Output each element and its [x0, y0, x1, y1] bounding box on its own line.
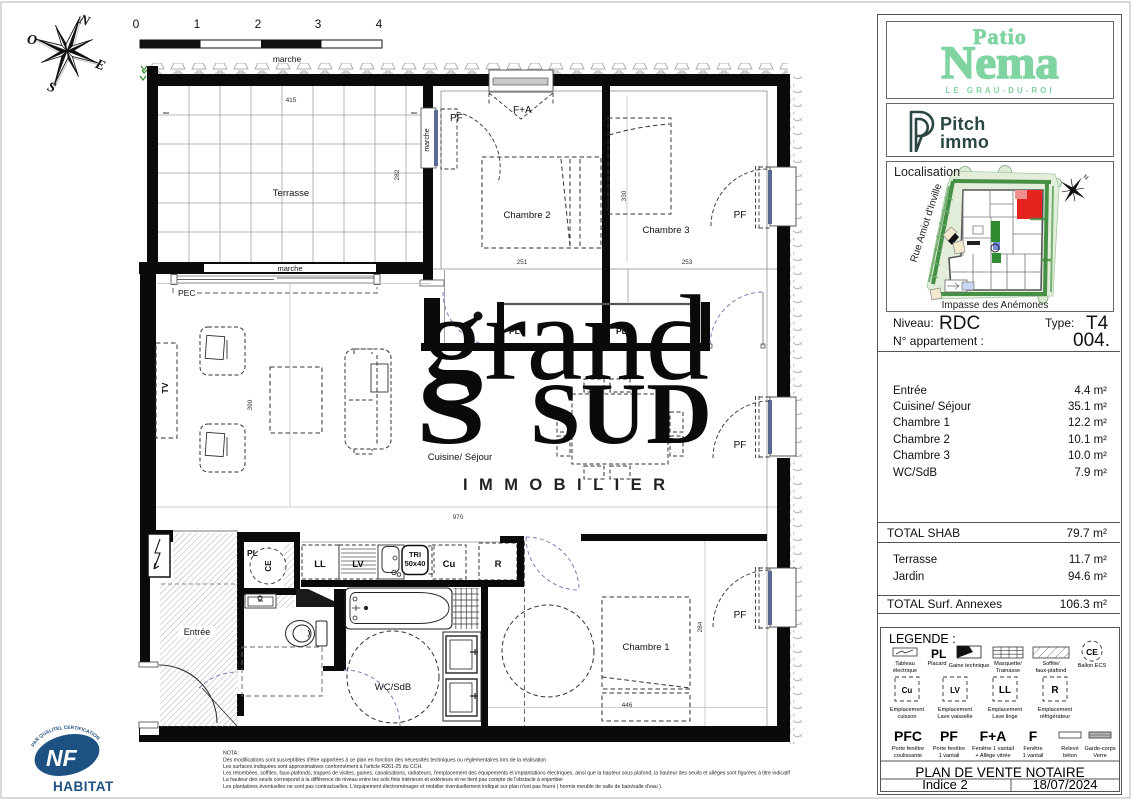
- svg-text:0: 0: [133, 17, 140, 31]
- svg-text:1 vantail: 1 vantail: [1023, 753, 1044, 759]
- svg-text:Trainasse: Trainasse: [996, 668, 1020, 674]
- svg-text:Chambre 2: Chambre 2: [504, 210, 551, 221]
- svg-text:Garde-corps: Garde-corps: [1084, 746, 1115, 752]
- svg-text:Localisation: Localisation: [894, 165, 960, 179]
- svg-text:284: 284: [697, 621, 704, 632]
- svg-text:PF: PF: [734, 210, 747, 221]
- svg-text:CE: CE: [264, 560, 273, 572]
- svg-text:Entrée: Entrée: [184, 627, 211, 637]
- svg-text:Emplacement: Emplacement: [988, 707, 1023, 713]
- svg-text:CE: CE: [1086, 647, 1098, 657]
- svg-text:PEC: PEC: [178, 288, 195, 298]
- svg-text:Les surfaces indiquées sont ap: Les surfaces indiquées sont approximativ…: [223, 764, 423, 770]
- svg-text:WC/SdB: WC/SdB: [375, 682, 411, 693]
- svg-text:415: 415: [286, 97, 297, 104]
- svg-text:Emplacement: Emplacement: [1038, 707, 1073, 713]
- svg-text:Tableau: Tableau: [895, 661, 915, 667]
- svg-text:Relevé: Relevé: [1061, 746, 1078, 752]
- svg-text:1 vantail: 1 vantail: [939, 753, 960, 759]
- svg-text:SUD: SUD: [530, 366, 712, 463]
- svg-text:R: R: [1051, 685, 1059, 696]
- svg-text:LL: LL: [999, 685, 1011, 696]
- svg-text:Emplacement: Emplacement: [890, 707, 925, 713]
- svg-text:O: O: [27, 33, 37, 48]
- svg-text:18/07/2024: 18/07/2024: [1032, 777, 1097, 791]
- svg-text:+ Allège vitrée: + Allège vitrée: [975, 753, 1010, 759]
- svg-text:1: 1: [194, 17, 201, 31]
- svg-text:Gaine technique: Gaine technique: [949, 663, 990, 669]
- svg-text:R: R: [495, 559, 502, 570]
- svg-text:LEGENDE :: LEGENDE :: [889, 632, 956, 646]
- svg-text:NOTA :: NOTA :: [223, 751, 240, 757]
- svg-text:Porte fenêtre: Porte fenêtre: [892, 746, 924, 752]
- svg-text:TRI: TRI: [409, 550, 421, 559]
- svg-text:Emplacement: Emplacement: [938, 707, 973, 713]
- svg-text:immo: immo: [940, 132, 989, 152]
- svg-text:N: N: [1082, 174, 1089, 181]
- svg-text:F: F: [1029, 728, 1038, 744]
- svg-text:cuisson: cuisson: [898, 714, 917, 720]
- svg-text:253: 253: [682, 259, 693, 266]
- svg-text:électrique: électrique: [893, 668, 917, 674]
- svg-text:Placard: Placard: [928, 661, 947, 667]
- svg-text:HABITAT: HABITAT: [53, 779, 114, 794]
- svg-text:S: S: [45, 80, 58, 97]
- svg-text:Verre: Verre: [1093, 753, 1106, 759]
- svg-text:Les plantations éventuelles ne: Les plantations éventuelles ne sont pas …: [223, 784, 662, 790]
- svg-text:Lave linge: Lave linge: [992, 714, 1018, 720]
- svg-text:TV: TV: [160, 382, 170, 393]
- svg-text:PF: PF: [450, 113, 463, 124]
- svg-text:Masquette/: Masquette/: [994, 661, 1022, 667]
- svg-text:Ballon ECS: Ballon ECS: [1078, 663, 1107, 669]
- svg-text:Porte fenêtre: Porte fenêtre: [933, 746, 965, 752]
- svg-text:IMMOBILIER: IMMOBILIER: [463, 476, 665, 494]
- svg-text:Impasse des Anémones: Impasse des Anémones: [942, 300, 1049, 311]
- svg-text:LV: LV: [950, 686, 960, 695]
- svg-text:3: 3: [315, 17, 322, 31]
- svg-text:Les retombées, soffites, faux-: Les retombées, soffites, faux-plafonds, …: [223, 771, 791, 777]
- svg-text:LV: LV: [352, 559, 364, 570]
- svg-text:50x40: 50x40: [405, 559, 426, 568]
- svg-text:F+A: F+A: [980, 728, 1007, 744]
- svg-text:coulissante: coulissante: [894, 753, 922, 759]
- svg-text:970: 970: [453, 514, 464, 521]
- svg-text:2: 2: [255, 17, 262, 31]
- svg-text:Pitch: Pitch: [940, 114, 986, 134]
- svg-text:béton: béton: [1063, 753, 1077, 759]
- svg-text:Chambre 1: Chambre 1: [623, 642, 670, 653]
- svg-text:Des modifications sont suscept: Des modifications sont susceptibles d'êt…: [223, 757, 546, 763]
- svg-text:446: 446: [622, 702, 633, 709]
- svg-text:4: 4: [376, 17, 383, 31]
- svg-text:marche: marche: [273, 54, 302, 64]
- svg-text:Chambre 3: Chambre 3: [643, 225, 690, 236]
- svg-text:PF: PF: [734, 440, 747, 451]
- svg-text:Fenêtre 1 vantail: Fenêtre 1 vantail: [972, 746, 1014, 752]
- svg-text:Fenêtre: Fenêtre: [1023, 746, 1042, 752]
- svg-text:E: E: [92, 57, 107, 75]
- svg-text:F+A: F+A: [513, 105, 532, 116]
- svg-text:réfrigérateur: réfrigérateur: [1040, 714, 1071, 720]
- svg-text:PFC: PFC: [894, 728, 922, 744]
- svg-text:LL: LL: [314, 559, 326, 570]
- svg-text:PF: PF: [734, 610, 747, 621]
- svg-text:251: 251: [517, 259, 528, 266]
- svg-text:Cu: Cu: [902, 686, 913, 695]
- svg-text:faux-plafond: faux-plafond: [1036, 668, 1067, 674]
- svg-text:Lave vaisselle: Lave vaisselle: [937, 714, 972, 720]
- svg-text:marche: marche: [277, 264, 302, 273]
- svg-text:PL: PL: [931, 647, 946, 661]
- svg-text:Soffite/: Soffite/: [1042, 661, 1060, 667]
- svg-text:marche: marche: [424, 128, 431, 151]
- svg-text:Indice 2: Indice 2: [922, 777, 968, 791]
- svg-text:PF: PF: [940, 728, 958, 744]
- svg-text:NF: NF: [46, 745, 78, 771]
- svg-text:S: S: [416, 357, 486, 464]
- svg-text:La hauteur des seuils correspo: La hauteur des seuils correspond à la di…: [223, 777, 563, 783]
- svg-text:Cu: Cu: [443, 559, 456, 570]
- svg-text:Terrasse: Terrasse: [273, 188, 309, 199]
- svg-text:282: 282: [394, 169, 401, 180]
- svg-text:390: 390: [247, 399, 254, 410]
